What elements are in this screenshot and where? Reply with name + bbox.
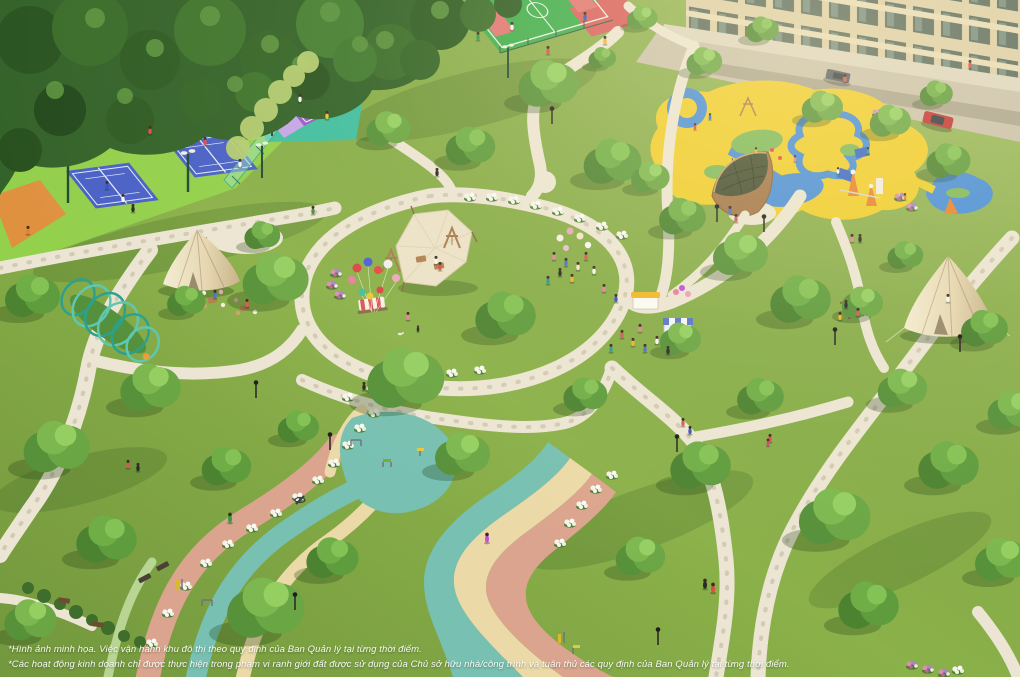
park-scene — [0, 0, 1020, 677]
park-aerial-render: *Hình ảnh minh họa. Việc vận hành khu đô… — [0, 0, 1020, 677]
disclaimer-line-1: *Hình ảnh minh họa. Việc vận hành khu đô… — [8, 644, 422, 655]
sunlight-overlay — [0, 0, 1020, 677]
disclaimer-line-2: *Các hoạt động kinh doanh chỉ được thực … — [8, 659, 790, 670]
